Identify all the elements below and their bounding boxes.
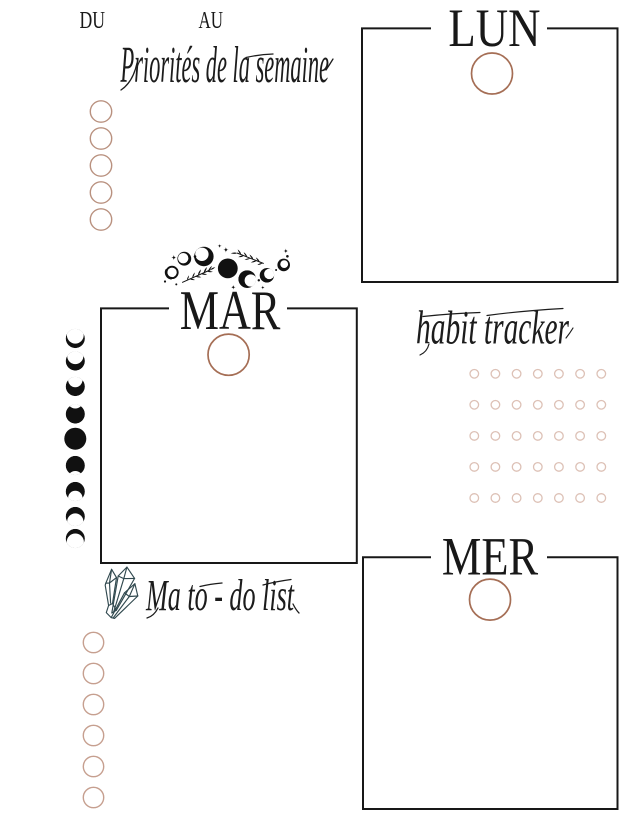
svg-text:LUN: LUN [448,0,540,58]
svg-text:DU: DU [80,7,106,34]
svg-text:MER: MER [442,527,538,587]
svg-text:AU: AU [199,7,224,34]
svg-text:MAR: MAR [180,280,281,342]
svg-text:Ma to - do list: Ma to - do list [145,571,295,620]
svg-text:Priorités de la semaine: Priorités de la semaine [120,37,329,94]
